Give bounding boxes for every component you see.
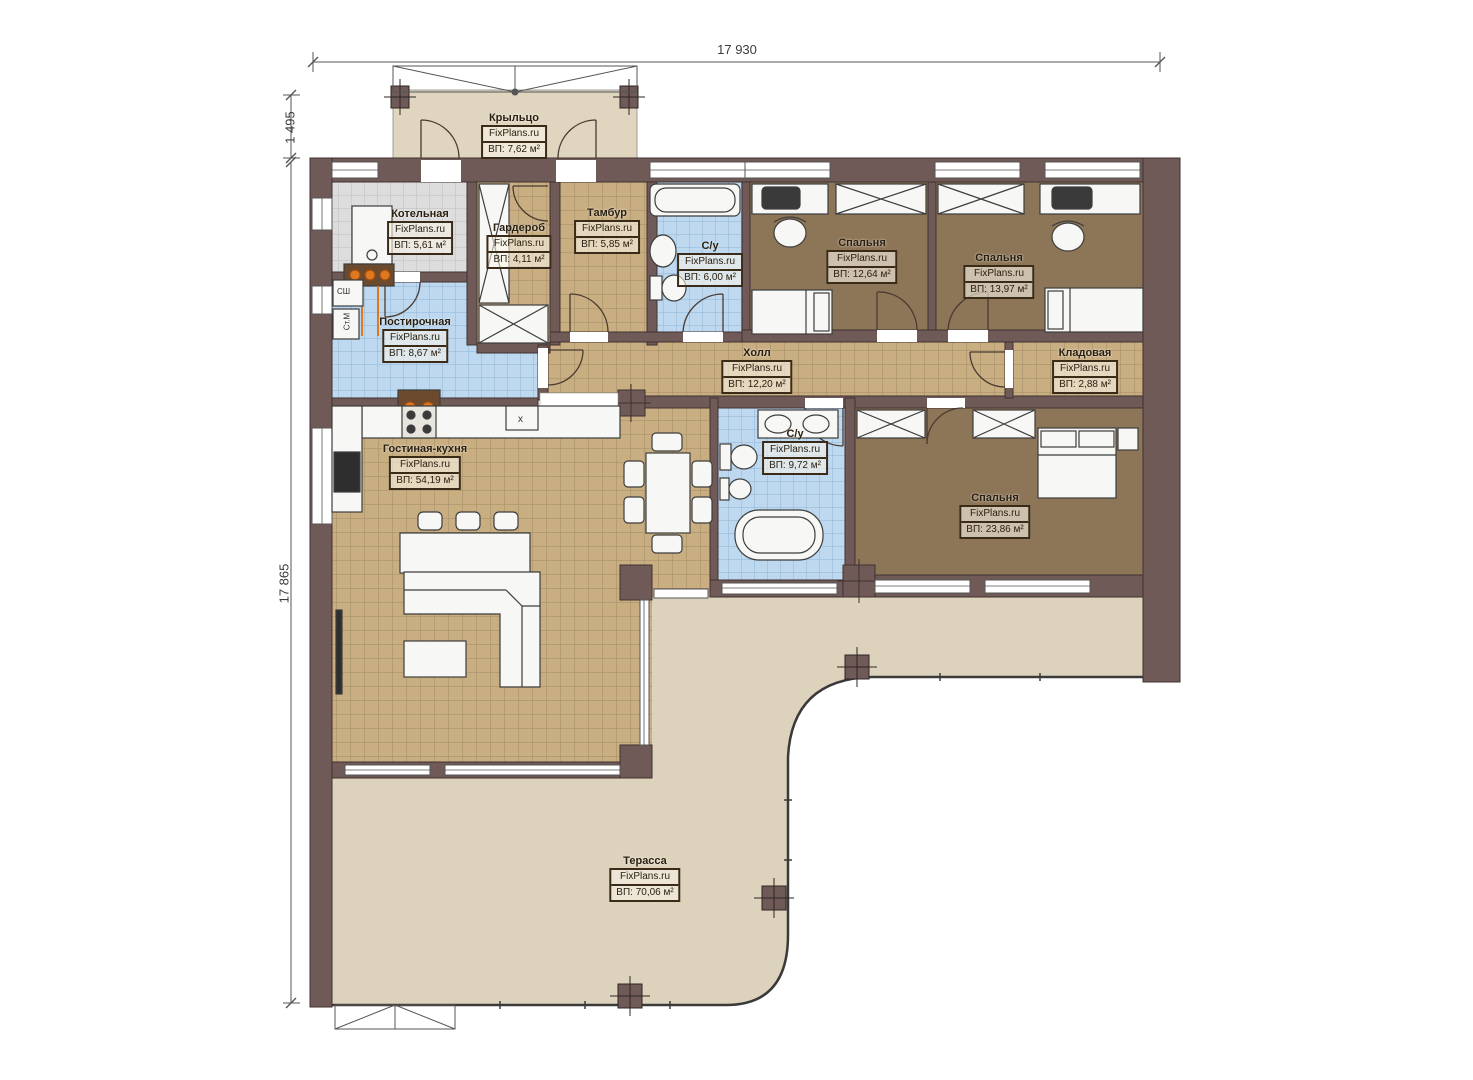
- wall-left: [310, 158, 332, 1007]
- room-label-box: FixPlans.ru ВП: 70,06 м²: [609, 868, 680, 902]
- drying-cabinet-label: СШ: [337, 287, 350, 296]
- area-label: ВП: 5,61 м²: [389, 237, 451, 253]
- brand-label: FixPlans.ru: [576, 222, 638, 236]
- room-label-wardrobe: Гардероб FixPlans.ru ВП: 4,11 м²: [486, 222, 551, 269]
- coffee-table: [404, 641, 466, 677]
- nightstand: [1118, 428, 1138, 450]
- bar-stool: [456, 512, 480, 530]
- room-label-box: FixPlans.ru ВП: 7,62 м²: [481, 125, 547, 159]
- room-label-box: FixPlans.ru ВП: 4,11 м²: [486, 235, 551, 269]
- floor-plan-drawing: x: [0, 0, 1473, 1080]
- tv: [336, 610, 342, 694]
- area-label: ВП: 23,86 м²: [961, 521, 1028, 537]
- room-label-box: FixPlans.ru ВП: 12,20 м²: [721, 360, 792, 394]
- dining-table: [646, 453, 690, 533]
- room-label-terrace: Терасса FixPlans.ru ВП: 70,06 м²: [609, 855, 680, 902]
- fridge: [334, 452, 360, 492]
- brand-label: FixPlans.ru: [723, 362, 790, 376]
- room-name: С/у: [677, 240, 743, 252]
- area-label: ВП: 12,20 м²: [723, 376, 790, 392]
- area-label: ВП: 12,64 м²: [828, 266, 895, 282]
- area-label: ВП: 7,62 м²: [483, 141, 545, 157]
- area-label: ВП: 8,67 м²: [384, 345, 446, 361]
- brand-label: FixPlans.ru: [1054, 362, 1116, 376]
- brand-label: FixPlans.ru: [965, 267, 1032, 281]
- room-name: Гардероб: [486, 222, 551, 234]
- room-label-box: FixPlans.ru ВП: 2,88 м²: [1052, 360, 1118, 394]
- room-name: Постирочная: [379, 316, 450, 328]
- room-label-box: FixPlans.ru ВП: 23,86 м²: [959, 505, 1030, 539]
- dimension-height-total: 17 865: [277, 554, 292, 614]
- room-label-box: FixPlans.ru ВП: 12,64 м²: [826, 250, 897, 284]
- brand-label: FixPlans.ru: [961, 507, 1028, 521]
- room-label-box: FixPlans.ru ВП: 54,19 м²: [389, 456, 460, 490]
- boiler-unit: [352, 206, 392, 264]
- brand-label: FixPlans.ru: [679, 255, 741, 269]
- desk-chair: [1052, 223, 1084, 251]
- room-name: Терасса: [609, 855, 680, 867]
- printer: [762, 187, 800, 209]
- dimension-porch-depth: 1 495: [283, 98, 298, 158]
- room-label-laundry: Постирочная FixPlans.ru ВП: 8,67 м²: [379, 316, 450, 363]
- area-label: ВП: 54,19 м²: [391, 472, 458, 488]
- area-label: ВП: 9,72 м²: [764, 457, 826, 473]
- kitchen-sink-mark: x: [518, 414, 523, 425]
- room-label-box: FixPlans.ru ВП: 13,97 м²: [963, 265, 1034, 299]
- room-label-boiler-room: Котельная FixPlans.ru ВП: 5,61 м²: [387, 208, 453, 255]
- toilet: [731, 445, 757, 469]
- brand-label: FixPlans.ru: [483, 127, 545, 141]
- brand-label: FixPlans.ru: [764, 443, 826, 457]
- bar-stool: [418, 512, 442, 530]
- room-label-bedroom-1: Спальня FixPlans.ru ВП: 12,64 м²: [826, 237, 897, 284]
- brand-label: FixPlans.ru: [391, 458, 458, 472]
- room-label-box: FixPlans.ru ВП: 6,00 м²: [677, 253, 743, 287]
- area-label: ВП: 70,06 м²: [611, 884, 678, 900]
- room-name: Гостиная-кухня: [383, 443, 467, 455]
- room-name: Котельная: [387, 208, 453, 220]
- washing-machine-label: Ст.М: [343, 305, 352, 339]
- bidet: [729, 479, 751, 499]
- area-label: ВП: 5,85 м²: [576, 236, 638, 252]
- room-label-storage: Кладовая FixPlans.ru ВП: 2,88 м²: [1052, 347, 1118, 394]
- terrace-steps: [335, 1005, 455, 1029]
- toilet-tank: [650, 276, 662, 300]
- dining-chair: [692, 461, 712, 487]
- room-name: Крыльцо: [481, 112, 547, 124]
- dining-chair: [652, 433, 682, 451]
- room-name: Спальня: [826, 237, 897, 249]
- room-label-hall: Холл FixPlans.ru ВП: 12,20 м²: [721, 347, 792, 394]
- brand-label: FixPlans.ru: [384, 331, 446, 345]
- bidet-base: [720, 478, 729, 500]
- printer: [1052, 187, 1092, 209]
- room-name: Холл: [721, 347, 792, 359]
- room-name: Спальня: [959, 492, 1030, 504]
- wall-right: [1143, 158, 1180, 682]
- room-label-box: FixPlans.ru ВП: 5,61 м²: [387, 221, 453, 255]
- room-label-bedroom-2: Спальня FixPlans.ru ВП: 13,97 м²: [963, 252, 1034, 299]
- brand-label: FixPlans.ru: [488, 237, 549, 251]
- dining-chair: [624, 461, 644, 487]
- area-label: ВП: 13,97 м²: [965, 281, 1032, 297]
- area-label: ВП: 6,00 м²: [679, 269, 741, 285]
- area-label: ВП: 4,11 м²: [488, 251, 549, 267]
- brand-label: FixPlans.ru: [611, 870, 678, 884]
- dining-chair: [692, 497, 712, 523]
- room-name: Тамбур: [574, 207, 640, 219]
- room-name: Спальня: [963, 252, 1034, 264]
- room-label-living-kitchen: Гостиная-кухня FixPlans.ru ВП: 54,19 м²: [383, 443, 467, 490]
- brand-label: FixPlans.ru: [389, 223, 451, 237]
- room-label-bathroom-1: С/у FixPlans.ru ВП: 6,00 м²: [677, 240, 743, 287]
- bar-stool: [494, 512, 518, 530]
- area-label: ВП: 2,88 м²: [1054, 376, 1116, 392]
- dimension-width-total: 17 930: [717, 42, 757, 57]
- room-label-box: FixPlans.ru ВП: 5,85 м²: [574, 220, 640, 254]
- room-name: С/у: [762, 428, 828, 440]
- room-label-box: FixPlans.ru ВП: 9,72 м²: [762, 441, 828, 475]
- toilet-tank: [720, 444, 731, 470]
- room-label-porch: Крыльцо FixPlans.ru ВП: 7,62 м²: [481, 112, 547, 159]
- kitchen-island: [400, 533, 530, 573]
- room-label-box: FixPlans.ru ВП: 8,67 м²: [382, 329, 448, 363]
- brand-label: FixPlans.ru: [828, 252, 895, 266]
- stove: [402, 406, 436, 438]
- room-label-bathroom-2: С/у FixPlans.ru ВП: 9,72 м²: [762, 428, 828, 475]
- dining-chair: [652, 535, 682, 553]
- desk-chair: [774, 219, 806, 247]
- dining-chair: [624, 497, 644, 523]
- sink: [650, 235, 676, 267]
- floor-plan-page: x 17 930 1 495 17 865 СШ Ст.М Крыльцо Fi…: [0, 0, 1473, 1080]
- kitchen-counter: [362, 406, 620, 438]
- room-label-bedroom-3: Спальня FixPlans.ru ВП: 23,86 м²: [959, 492, 1030, 539]
- room-label-vestibule: Тамбур FixPlans.ru ВП: 5,85 м²: [574, 207, 640, 254]
- room-name: Кладовая: [1052, 347, 1118, 359]
